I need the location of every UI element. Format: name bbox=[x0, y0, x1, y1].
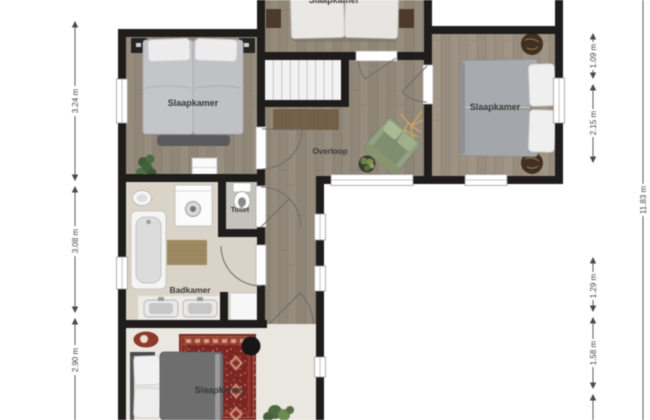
svg-text:Toilet: Toilet bbox=[231, 207, 250, 214]
svg-text:Overloop: Overloop bbox=[312, 147, 347, 156]
svg-text:1.29 m: 1.29 m bbox=[589, 273, 598, 298]
svg-text:Slaapkamer: Slaapkamer bbox=[470, 102, 521, 112]
svg-text:11.83 m: 11.83 m bbox=[639, 186, 648, 215]
svg-text:2.90 m: 2.90 m bbox=[71, 347, 80, 372]
svg-text:3.08 m: 3.08 m bbox=[71, 228, 80, 253]
svg-text:1.58 m: 1.58 m bbox=[589, 340, 598, 365]
svg-text:2.15 m: 2.15 m bbox=[589, 110, 598, 135]
svg-text:Slaapkamer: Slaapkamer bbox=[309, 0, 360, 5]
svg-text:Slaapkamer: Slaapkamer bbox=[195, 385, 246, 395]
svg-text:1.09 m: 1.09 m bbox=[589, 43, 598, 68]
svg-text:3.24 m: 3.24 m bbox=[71, 88, 80, 113]
svg-text:Badkamer: Badkamer bbox=[169, 285, 211, 295]
svg-text:Slaapkamer: Slaapkamer bbox=[168, 98, 219, 108]
